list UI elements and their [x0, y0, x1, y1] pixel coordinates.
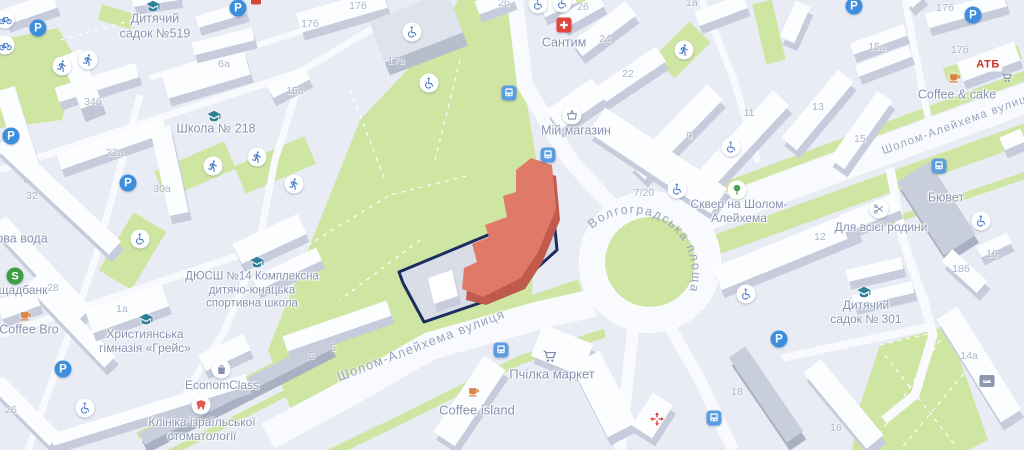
redchip-icon	[251, 0, 261, 5]
poi-label-line: Пчілка маркет	[509, 366, 594, 381]
building-number: 7/20	[634, 187, 654, 199]
bag-icon[interactable]	[212, 360, 231, 379]
parking-icon[interactable]: P	[120, 175, 137, 192]
poi-label-line: ова вода	[0, 232, 48, 247]
building-number: 1а	[686, 0, 698, 9]
bicycle-icon	[0, 36, 15, 55]
building-number: 17б	[301, 18, 319, 30]
wheelchair-icon	[420, 74, 439, 93]
poi-label-line: Для всієї родини	[835, 220, 928, 234]
bus-icon[interactable]	[502, 86, 517, 101]
building-number: 17б	[936, 2, 954, 14]
poi-label-line: Бювет	[928, 191, 964, 206]
running-icon	[53, 57, 72, 76]
running-icon	[79, 51, 98, 70]
poi-label[interactable]: Сквер на Шолом-Алейхема	[691, 197, 788, 225]
poi-label-line: Школа № 218	[176, 122, 255, 137]
poi-label[interactable]: Школа № 218	[176, 122, 255, 137]
building-number: 28	[47, 282, 59, 294]
building-number: 32а	[106, 147, 124, 159]
basket-icon[interactable]	[563, 106, 582, 125]
parking-icon[interactable]: P	[55, 361, 72, 378]
running-icon	[248, 148, 267, 167]
building-number: 1а	[116, 303, 128, 315]
hotel-icon[interactable]	[980, 375, 995, 387]
running-icon	[204, 157, 223, 176]
parking-icon[interactable]: P	[230, 0, 247, 17]
poi-label-line: спортивна школа	[185, 298, 319, 312]
wheelchair-icon	[76, 399, 95, 418]
poi-label-line: Coffee & cake	[918, 88, 996, 103]
parking-icon[interactable]: P	[965, 7, 982, 24]
school-icon[interactable]	[856, 285, 873, 300]
poi-label-line: АТБ	[976, 59, 1000, 72]
wheelchair-icon	[668, 180, 687, 199]
poi-label-line: Coffee island	[439, 402, 515, 417]
building-number: 15а	[286, 85, 304, 97]
poi-label-line: Християнська	[99, 327, 191, 341]
coffee-icon[interactable]	[467, 384, 481, 398]
bank-icon[interactable]: S	[7, 268, 24, 285]
wheelchair-icon	[737, 285, 756, 304]
building-number: 17б	[951, 44, 969, 56]
wheelchair-icon	[131, 230, 150, 249]
running-icon	[285, 175, 304, 194]
running-icon	[675, 41, 694, 60]
map-canvas[interactable]: Волгоградська площа Шолом-Алейхема вулиц…	[0, 0, 1024, 450]
building-number: 14а	[960, 350, 978, 362]
school-icon[interactable]	[249, 255, 266, 270]
poi-label-line: садок № 301	[830, 312, 901, 326]
building-number: 11	[744, 107, 755, 119]
poi-label-line: Алейхема	[691, 211, 788, 225]
poi-label[interactable]: Для всієї родини	[835, 220, 928, 234]
street-label-sholom-aleikhema-sw: Шолом-Алейхема вулиця	[335, 306, 507, 384]
poi-label-line: Coffee Bro	[0, 323, 59, 338]
coffee-icon[interactable]	[19, 308, 33, 322]
poi-label-line: щадбанк	[0, 283, 47, 297]
map-overlay-layer: Шолом-Алейхема вулиця Шолом-Алейхема вул…	[0, 0, 1024, 450]
poi-label-line: Сантим	[542, 36, 586, 51]
poi-label[interactable]: Дитячийсадок №519	[120, 11, 191, 41]
coffee-icon[interactable]	[948, 70, 962, 84]
poi-label[interactable]: EconomClass	[185, 378, 259, 392]
bus-icon[interactable]	[541, 148, 556, 163]
building-number: 22	[622, 68, 634, 80]
poi-label[interactable]: ДЮСШ №14 Комплекснадитячо-юнацькаспортив…	[185, 271, 319, 312]
bus-icon[interactable]	[494, 343, 509, 358]
building-number: 17в	[387, 55, 404, 67]
building-number: 16	[830, 422, 842, 434]
poi-label[interactable]: Бювет	[928, 191, 964, 206]
building-number: 32	[26, 190, 38, 202]
bus-icon[interactable]	[707, 411, 722, 426]
cart-small-icon[interactable]	[1001, 72, 1013, 84]
wheelchair-icon	[403, 23, 422, 42]
wheelchair-icon	[972, 212, 991, 231]
school-icon[interactable]	[206, 109, 223, 124]
parking-icon[interactable]: P	[3, 128, 20, 145]
parking-icon[interactable]: P	[771, 331, 788, 348]
tree-icon[interactable]	[728, 181, 747, 200]
poi-label[interactable]: Coffee Bro	[0, 323, 59, 338]
pharmacy-icon[interactable]	[557, 18, 572, 33]
poi-label[interactable]: Дитячийсадок № 301	[830, 298, 901, 326]
medcross-icon[interactable]	[650, 412, 665, 427]
building-number: 26	[5, 404, 17, 416]
poi-label-line: Клініка ізраїльської	[148, 415, 255, 429]
building-number: 2б	[498, 0, 510, 9]
poi-label[interactable]: Християнськагімназія «Грейс»	[99, 327, 191, 355]
building-number: 6а	[218, 58, 230, 70]
parking-icon[interactable]: P	[30, 20, 47, 37]
poi-label[interactable]: ова вода	[0, 232, 48, 247]
cart-icon[interactable]	[542, 349, 558, 365]
school-icon[interactable]	[145, 0, 162, 14]
poi-label-line: садок №519	[120, 26, 191, 41]
poi-label-line: ДЮСШ №14 Комплексна	[185, 271, 319, 285]
poi-label-line: стоматології	[148, 429, 255, 443]
tooth-icon[interactable]	[192, 396, 211, 415]
building-number: 18	[731, 386, 743, 398]
building-number: 30а	[153, 183, 171, 195]
poi-label[interactable]: Coffee & cake	[918, 88, 996, 103]
poi-label[interactable]: Клініка ізраїльськоїстоматології	[148, 415, 255, 443]
building-number: 5	[309, 350, 315, 362]
building-number: 5	[330, 342, 336, 354]
building-number: 15а	[868, 41, 886, 53]
bus-icon[interactable]	[932, 159, 947, 174]
building-number: 2б	[577, 1, 589, 13]
scissors-icon[interactable]	[870, 200, 889, 219]
building-number: 24	[599, 33, 611, 45]
building-number: 15	[854, 133, 866, 145]
school-icon[interactable]	[138, 312, 155, 327]
wheelchair-icon	[553, 0, 572, 13]
poi-label[interactable]: АТБ	[974, 59, 1002, 72]
building-number: 16	[986, 248, 998, 260]
building-number: 9	[686, 130, 692, 142]
building-number: 12	[814, 231, 826, 243]
poi-label[interactable]: Мій магазин	[541, 124, 611, 139]
poi-label[interactable]: Coffee island	[439, 402, 515, 417]
building-number: 13	[812, 101, 824, 113]
poi-label-line: Мій магазин	[541, 124, 611, 139]
poi-label-line: EconomClass	[185, 378, 259, 392]
parking-icon[interactable]: P	[846, 0, 863, 15]
building-number: 18б	[952, 263, 970, 275]
poi-label[interactable]: Сантим	[542, 36, 586, 51]
poi-label-line: дитячо-юнацька	[185, 284, 319, 298]
poi-label-line: гімназія «Грейс»	[99, 341, 191, 355]
poi-label-line: Дитячий	[830, 298, 901, 312]
building-number: 17б	[349, 0, 367, 12]
building-number: 34б	[84, 96, 102, 108]
wheelchair-icon	[529, 0, 548, 14]
wheelchair-icon	[722, 138, 741, 157]
poi-label[interactable]: щадбанк	[0, 283, 47, 297]
bicycle-icon	[0, 10, 15, 29]
poi-label[interactable]: Пчілка маркет	[509, 366, 594, 381]
